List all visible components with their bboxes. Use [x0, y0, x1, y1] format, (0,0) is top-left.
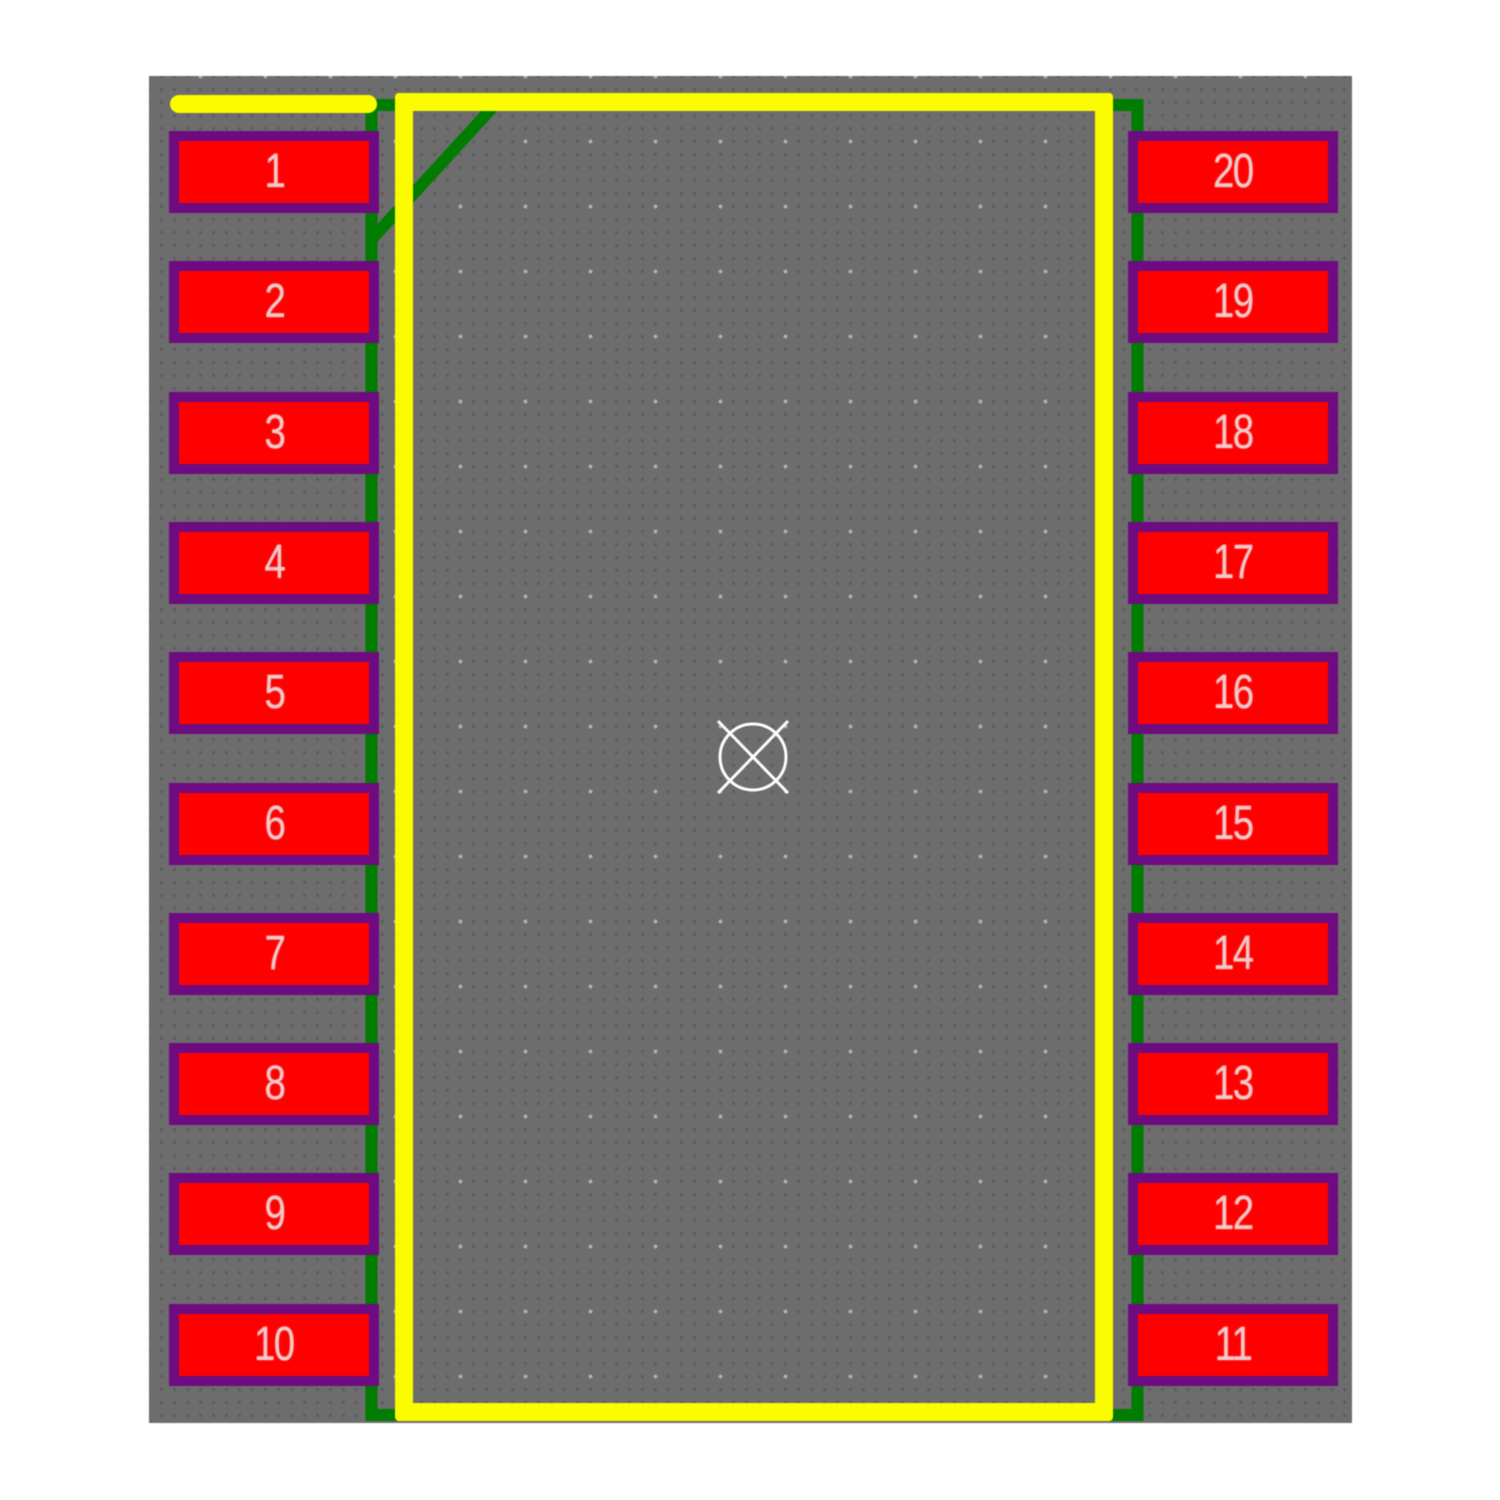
pcb-footprint-canvas[interactable]: 1 2 3 4 5 6 7 8 9 10 20 19 18 17 16 15 1…: [149, 76, 1352, 1423]
origin-marker-icon: [149, 76, 1352, 1423]
